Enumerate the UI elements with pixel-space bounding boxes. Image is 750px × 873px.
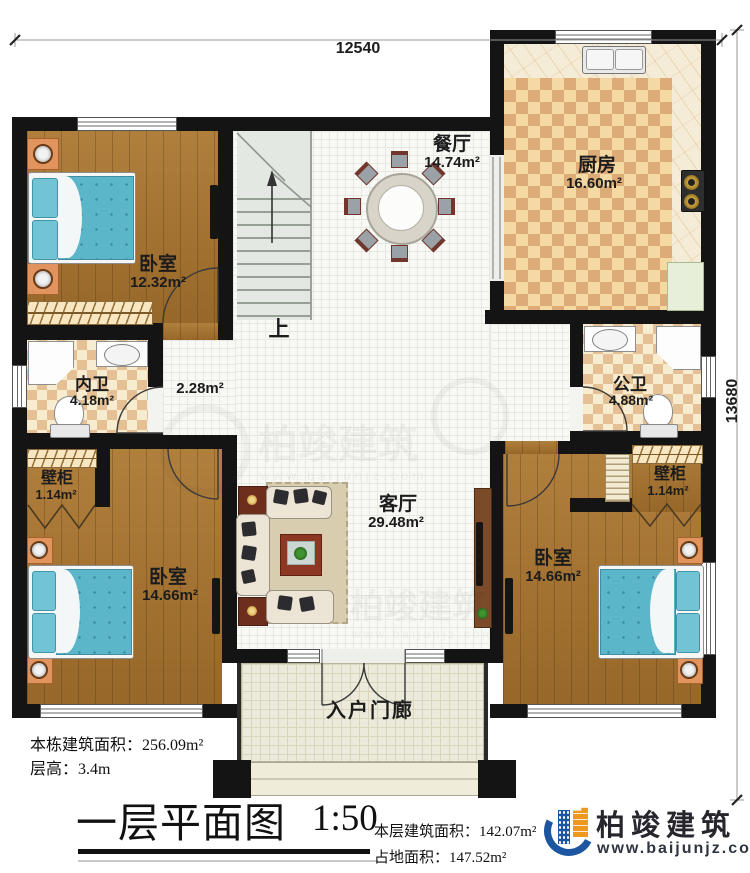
closet-right-area: 1.14m²: [628, 484, 708, 498]
svg-text:www.baijunjz.com: www.baijunjz.com: [259, 468, 427, 483]
bedroom1-label: 卧室: [118, 255, 198, 275]
sliding-door: [493, 157, 500, 279]
logo-building-blue-icon: [558, 810, 570, 844]
porch-label: 入户门廊: [305, 701, 435, 722]
svg-text:柏竣建筑: 柏竣建筑: [258, 423, 418, 467]
floor-plan: 柏竣建筑 www.baijunjz.com 柏竣建筑 www.baijunjz.…: [0, 0, 750, 873]
stair-symbols: [237, 133, 311, 243]
dim-right-value: 13680: [725, 359, 743, 443]
dim-top-value: 12540: [328, 41, 388, 58]
logo-building-orange-icon: [573, 807, 588, 837]
bedroom3-area: 14.66m²: [513, 569, 593, 585]
svg-text:柏竣建筑: 柏竣建筑: [350, 587, 486, 626]
watermark: 柏竣建筑 www.baijunjz.com 柏竣建筑 www.baijunjz.…: [163, 380, 506, 641]
public-bath-area: 4.88m²: [591, 393, 671, 408]
kitchen-area: 16.60m²: [554, 176, 634, 192]
page-title: 一层平面图: [76, 789, 286, 849]
total-area-note: 本栋建筑面积：256.09m²: [30, 731, 203, 755]
floor-area-note: 本层建筑面积：142.07m²: [374, 820, 536, 841]
bedroom2-area: 14.66m²: [130, 588, 210, 604]
closet-left-area: 1.14m²: [16, 488, 96, 502]
stairs-up-label: 上: [259, 319, 299, 341]
bedroom1-area: 12.32m²: [118, 275, 198, 291]
inner-hall-area: 2.28m²: [160, 381, 240, 397]
living-label: 客厅: [358, 495, 438, 515]
brand-website: www.baijunjz.com: [597, 840, 750, 858]
brand-logo: [542, 802, 600, 862]
footprint-area-note: 占地面积：147.52m²: [374, 846, 506, 867]
dining-area: 14.74m²: [412, 155, 492, 171]
bedroom3-label: 卧室: [513, 549, 593, 569]
bedroom2-label: 卧室: [128, 568, 208, 588]
title-underline-thin: [78, 860, 378, 862]
living-area: 29.48m²: [356, 515, 436, 531]
closet-right-label: 壁柜: [630, 467, 710, 484]
title-underline: [78, 849, 370, 854]
entry-jambs: [322, 649, 405, 663]
floor-height-note: 层高：3.4m: [30, 755, 110, 779]
kitchen-label: 厨房: [557, 156, 637, 176]
ensuite-area: 4.18m²: [52, 393, 132, 408]
brand-name: 柏竣建筑: [596, 802, 736, 844]
closet-left-label: 壁柜: [17, 471, 97, 488]
svg-text:www.baijunjz.com: www.baijunjz.com: [351, 627, 495, 641]
dining-label: 餐厅: [412, 135, 492, 155]
scale-value: 1:50: [312, 797, 378, 840]
